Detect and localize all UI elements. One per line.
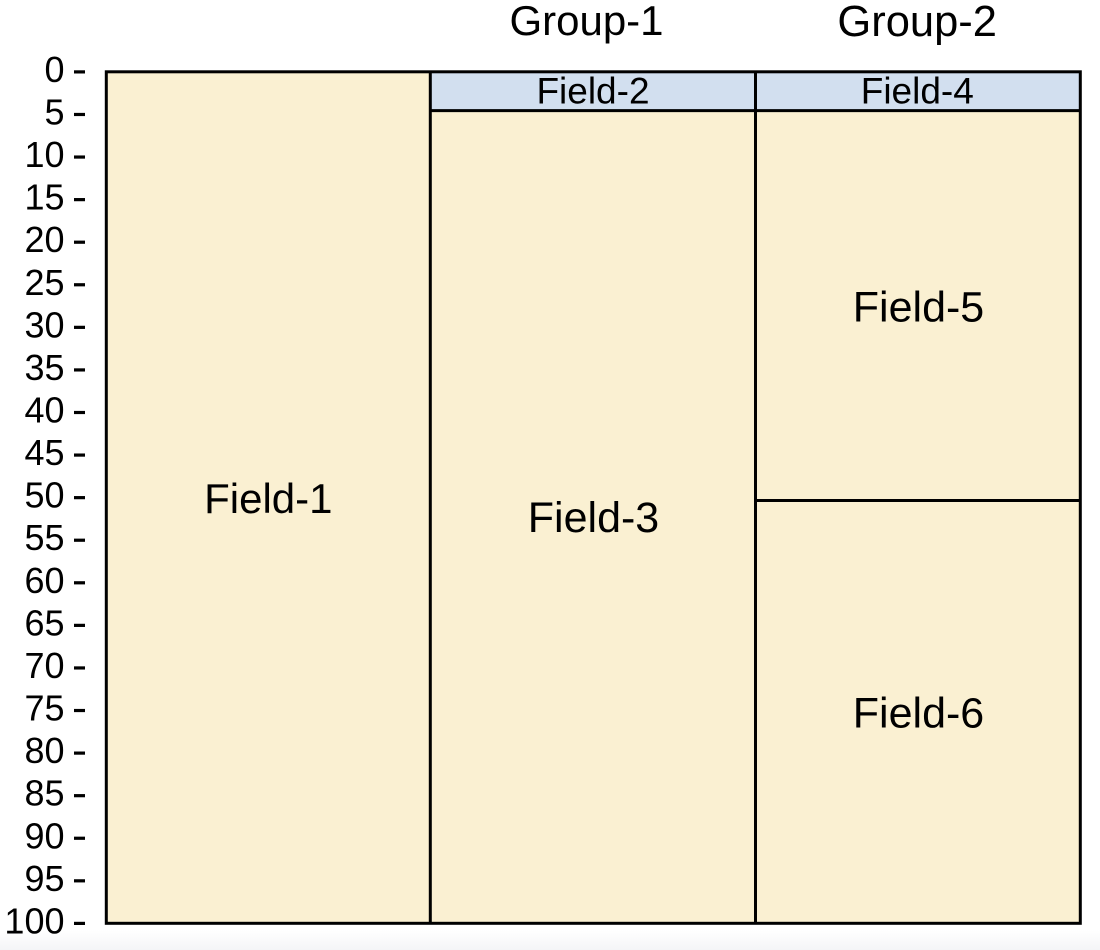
svg-text:45: 45 [24, 432, 64, 473]
svg-text:Group-1: Group-1 [509, 0, 663, 44]
svg-text:Group-2: Group-2 [837, 0, 997, 46]
svg-text:100: 100 [4, 900, 64, 941]
svg-text:30: 30 [24, 304, 64, 345]
svg-text:60: 60 [24, 560, 64, 601]
svg-text:0: 0 [44, 49, 64, 90]
svg-text:20: 20 [24, 219, 64, 260]
svg-text:15: 15 [24, 177, 64, 218]
svg-text:Field-2: Field-2 [536, 71, 649, 112]
svg-text:95: 95 [24, 858, 64, 899]
svg-text:10: 10 [24, 134, 64, 175]
svg-text:35: 35 [24, 347, 64, 388]
svg-text:40: 40 [24, 390, 64, 431]
svg-text:Field-1: Field-1 [204, 475, 332, 522]
svg-text:5: 5 [44, 91, 64, 132]
svg-text:75: 75 [24, 688, 64, 729]
svg-text:Field-4: Field-4 [861, 71, 974, 112]
svg-text:Field-5: Field-5 [853, 283, 984, 331]
svg-text:85: 85 [24, 773, 64, 814]
svg-text:55: 55 [24, 517, 64, 558]
svg-text:50: 50 [24, 475, 64, 516]
svg-text:65: 65 [24, 602, 64, 643]
svg-text:80: 80 [24, 730, 64, 771]
svg-text:90: 90 [24, 815, 64, 856]
svg-text:Field-6: Field-6 [853, 690, 984, 738]
svg-text:Field-3: Field-3 [528, 494, 659, 542]
svg-text:70: 70 [24, 645, 64, 686]
svg-text:25: 25 [24, 262, 64, 303]
